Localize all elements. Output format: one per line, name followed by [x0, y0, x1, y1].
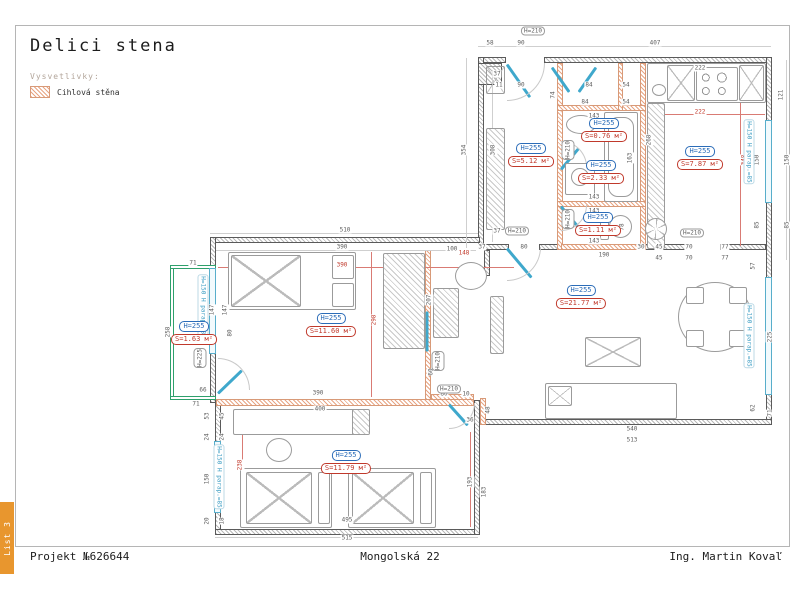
window: [765, 120, 772, 203]
room-height-label: H=255: [589, 118, 618, 129]
room-area-label: S=21.77 м²: [556, 298, 606, 309]
furniture-cabinet: [667, 65, 695, 101]
room-height-label: H=255: [685, 146, 714, 157]
dimension-label: 18: [218, 517, 227, 524]
furniture-wardrobe: [383, 253, 425, 349]
dimension-label: 53: [203, 412, 212, 419]
door-height-label: H=210: [437, 385, 461, 394]
floor-plan: 5890407119074845422212135430837378454143…: [0, 0, 800, 600]
door-height-label: H=210: [521, 27, 545, 36]
furniture-desk-chair: [266, 438, 292, 462]
dimension-label: 222: [694, 65, 707, 72]
wall: [210, 237, 480, 243]
dimension-label: 24: [203, 433, 212, 440]
dimension-label: 238: [236, 460, 245, 471]
furniture-coffee-table: [585, 337, 641, 367]
furniture-tv-stand: [490, 296, 504, 354]
furniture-chair: [686, 330, 704, 347]
room-label-kitchen: H=255S=7.87 м²: [677, 146, 723, 170]
room-label-kids-room: H=255S=11.79 м²: [321, 450, 371, 474]
balcony-wall: [170, 396, 216, 400]
furniture-chair: [729, 287, 747, 304]
dimension-label: 85: [753, 221, 762, 228]
dimension-label: 54: [621, 82, 630, 89]
furniture-chair: [686, 287, 704, 304]
room-area-label: S=2.33 м²: [578, 173, 624, 184]
dimension-label: 510: [339, 227, 352, 234]
furniture-armchair: [455, 262, 487, 290]
window-height-label: H=150 H parap.=85: [744, 303, 755, 368]
dimension-label: 84: [584, 82, 593, 89]
dimension-label: 70: [684, 244, 693, 251]
dimension-label: 80: [519, 244, 528, 251]
furniture-pillow: [332, 283, 354, 307]
furniture-cabinet: [739, 65, 764, 101]
dimension-label: 268: [645, 135, 654, 146]
dimension-label: 298: [370, 315, 379, 326]
furniture-drawer: [352, 409, 370, 435]
room-label-balcony: H=255S=1.63 м²: [171, 321, 217, 345]
room-height-label: H=255: [583, 212, 612, 223]
door-height-label: H=210: [432, 351, 445, 371]
dimension-label: 143: [588, 194, 601, 201]
dimension-label: 390: [336, 262, 349, 269]
dimension-label: 48: [484, 406, 493, 413]
room-area-label: S=5.12 м²: [508, 156, 554, 167]
room-area-label: S=11.79 м²: [321, 463, 371, 474]
room-height-label: H=255: [516, 143, 545, 154]
room-label-bedroom: H=255S=11.60 м²: [306, 313, 356, 337]
door-swing-arc: [507, 63, 545, 101]
dimension-label: 77: [720, 244, 729, 251]
dimension-label: 71: [766, 409, 775, 416]
door-swing-arc: [218, 358, 250, 390]
dimension-label: 24: [218, 433, 227, 440]
dimension-label: 80: [226, 329, 235, 336]
furniture-blanket: [352, 472, 414, 524]
dimension-label: 400: [314, 406, 327, 413]
door-height-label: H=210: [680, 229, 704, 238]
dimension-label: 150: [783, 155, 792, 166]
dimension-label: 147: [221, 305, 230, 316]
room-height-label: H=255: [179, 321, 208, 332]
room-height-label: H=255: [586, 160, 615, 171]
dimension-label: 150: [203, 474, 212, 485]
dimension-label: 513: [626, 437, 639, 444]
dimension-label: 70: [684, 255, 693, 262]
furniture-hall-wardrobe: [486, 128, 505, 230]
dimension-label: 225: [766, 332, 775, 343]
furniture-pillow: [318, 472, 330, 524]
door-height-label: H=210: [562, 209, 575, 229]
room-height-label: H=255: [316, 313, 345, 324]
dimension-label: 540: [626, 426, 639, 433]
room-height-label: H=255: [331, 450, 360, 461]
brick-wall: [557, 105, 646, 111]
door-leaf: [578, 67, 598, 93]
dimension-label: 54: [621, 99, 630, 106]
dimension-label: 85: [783, 221, 792, 228]
room-label-closet: H=255S=0.76 м²: [581, 118, 627, 142]
furniture-cushion: [548, 386, 572, 406]
furniture-blanket: [231, 255, 301, 307]
room-area-label: S=1.11 м²: [575, 225, 621, 236]
dimension-label: 121: [777, 90, 786, 101]
dimension-label: 37: [492, 71, 501, 78]
room-height-label: H=255: [566, 285, 595, 296]
dimension-label: 390: [336, 244, 349, 251]
furniture-vent-fan: [645, 218, 667, 240]
dimension-label: 222: [694, 109, 707, 116]
dimension-label: 11: [494, 82, 503, 89]
dimension-label: 495: [341, 517, 354, 524]
dimension-label: 71: [188, 260, 197, 267]
dimension-label: 37: [477, 244, 486, 251]
room-area-label: S=7.87 м²: [677, 159, 723, 170]
brick-wall: [640, 63, 646, 250]
door-swing-arc: [507, 247, 541, 281]
dimension-label: 147: [208, 305, 217, 316]
dimension-label: 45: [654, 255, 663, 262]
dimension-label: 66: [198, 387, 207, 394]
dimension-label: 207: [425, 295, 434, 306]
dimension-label: 190: [598, 252, 611, 259]
room-area-label: S=11.60 м²: [306, 326, 356, 337]
door-leaf: [426, 312, 429, 352]
dimension-label: 74: [549, 91, 558, 98]
dimension-label: 308: [489, 145, 498, 156]
dimension-label: 58: [485, 40, 494, 47]
wall: [478, 57, 484, 250]
furniture-sink: [652, 84, 666, 96]
dimension-label: 37: [492, 228, 501, 235]
dimension-label: 20: [203, 517, 212, 524]
brick-wall: [216, 399, 474, 406]
room-area-label: S=0.76 м²: [581, 131, 627, 142]
dimension-label: 163: [626, 153, 635, 164]
dimension-label: 515: [341, 535, 354, 542]
door-height-label: H=210: [562, 140, 575, 160]
door-height-label: H=225: [194, 348, 207, 368]
dimension-label: 45: [654, 244, 663, 251]
furniture-desk: [233, 409, 357, 435]
room-label-bathroom: H=255S=2.33 м²: [578, 160, 624, 184]
window-height-label: H=150 H parap.=85: [214, 444, 225, 509]
room-label-wc: H=255S=1.11 м²: [575, 212, 621, 236]
wall: [480, 419, 772, 425]
engineer-name: Ing. Martin Kovaľ: [669, 550, 782, 563]
dimension-label: 148: [458, 250, 471, 257]
dimension-label: 30: [636, 244, 645, 251]
dimension-label: 57: [749, 262, 758, 269]
dimension-label: 62: [749, 404, 758, 411]
dimension-label: 143: [588, 238, 601, 245]
dimension-label: 45: [218, 412, 227, 419]
dimension-label: 183: [480, 487, 489, 498]
furniture-blanket: [246, 472, 312, 524]
door-height-label: H=210: [505, 227, 529, 236]
dimension-label: 193: [466, 477, 475, 488]
dimension-label: 407: [649, 40, 662, 47]
furniture-stove: [696, 67, 738, 101]
furniture-pillow: [420, 472, 432, 524]
dimension-label: 90: [516, 82, 525, 89]
dimension-label: 77: [720, 255, 729, 262]
dimension-label: 10: [461, 391, 470, 398]
dimension-label: 354: [460, 145, 469, 156]
dimension-label: 90: [516, 40, 525, 47]
window-height-label: H=150 H parap.=85: [744, 119, 755, 184]
brick-wall: [561, 244, 640, 250]
furniture-shelf-unit: [433, 288, 459, 338]
dimension-label: 36: [465, 417, 474, 424]
dimension-label: 71: [191, 401, 200, 408]
room-label-hallway: H=255S=5.12 м²: [508, 143, 554, 167]
room-area-label: S=1.63 м²: [171, 334, 217, 345]
dimension-label: 100: [446, 246, 459, 253]
room-label-living-room: H=255S=21.77 м²: [556, 285, 606, 309]
dimension-label: 390: [312, 390, 325, 397]
dimension-label: 84: [580, 99, 589, 106]
